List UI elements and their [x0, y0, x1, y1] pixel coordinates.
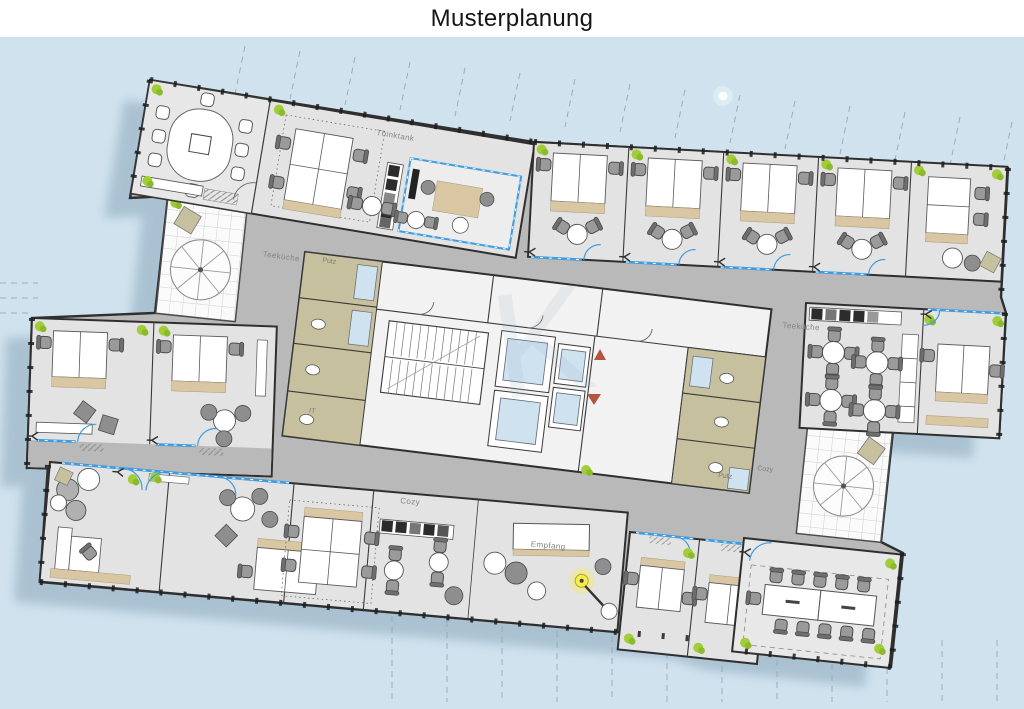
floor-plan-canvas: Thinktank Teeküche Putz IT Teeküche Putz…	[0, 0, 1024, 709]
terrace-northwest	[156, 196, 248, 322]
wing-east	[799, 303, 1007, 443]
staircase	[380, 321, 488, 405]
wing-west	[26, 318, 277, 476]
highlight-dot	[713, 86, 733, 106]
terrace-southeast	[796, 422, 892, 542]
meeting-room-oval	[131, 80, 270, 214]
label-cozy-bottom: Cozy	[400, 496, 421, 507]
wing-northeast	[524, 142, 1007, 282]
wc-block-right	[672, 347, 766, 492]
floor-plan-page: Musterplanung	[0, 0, 1024, 709]
conference-room	[729, 538, 901, 668]
